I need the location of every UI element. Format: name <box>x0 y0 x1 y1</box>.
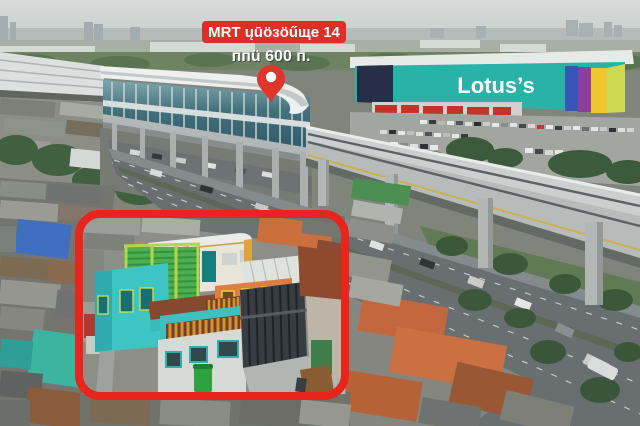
svg-text:MRT ųūöзöűщe 14: MRT ųūöзöűщe 14 <box>208 24 340 41</box>
svg-text:Lotus’s: Lotus’s <box>457 73 534 98</box>
svg-text:ппü 600 п.: ппü 600 п. <box>232 48 311 65</box>
